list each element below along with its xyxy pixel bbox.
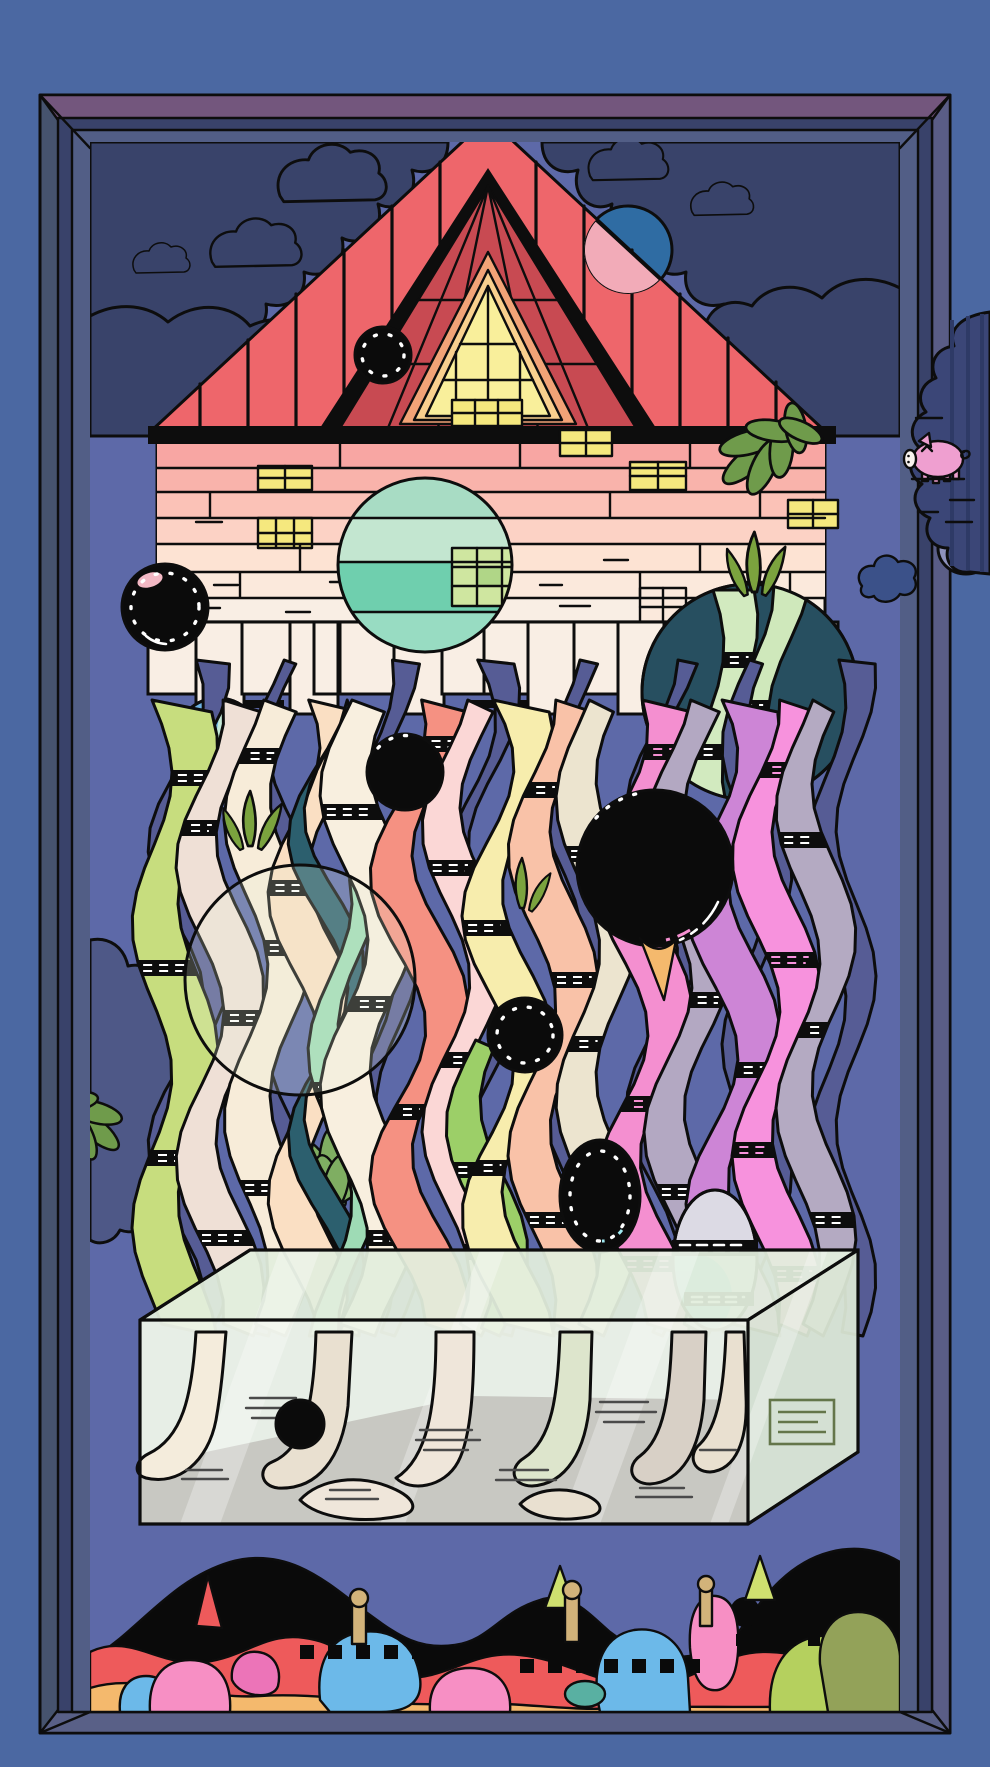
strand-rung: [237, 748, 280, 764]
bubble-gable: [355, 327, 411, 383]
scene: [25, 118, 900, 1712]
strand-rung: [810, 1212, 856, 1228]
strand-rung: [196, 1230, 255, 1246]
artwork-canvas: [0, 0, 990, 1767]
strand-rung: [551, 972, 598, 988]
strand-rung: [180, 820, 218, 836]
strand-rung: [462, 920, 512, 936]
bubble-wall: [122, 564, 208, 650]
bubble-box: [276, 1400, 324, 1448]
strand-rung: [321, 804, 383, 820]
strand-rung: [778, 832, 828, 848]
roof-side-window: [452, 400, 522, 426]
strand-rung: [765, 952, 818, 968]
bubble-big: [577, 790, 733, 946]
pig-snout: [904, 450, 916, 468]
strand-rung: [732, 1142, 775, 1158]
frame-right-bevel: [932, 95, 950, 1733]
bubble-mid-1: [367, 734, 443, 810]
bubble-mid-2: [488, 998, 562, 1072]
frame-top-bevel: [40, 95, 950, 120]
outline-circle: [185, 865, 415, 1095]
brick-column: [314, 622, 338, 694]
frame-bottom-bevel: [40, 1710, 950, 1733]
bubble-egg: [560, 1140, 640, 1252]
glass-box: [137, 1250, 858, 1524]
framed-illustration: [0, 0, 990, 1767]
